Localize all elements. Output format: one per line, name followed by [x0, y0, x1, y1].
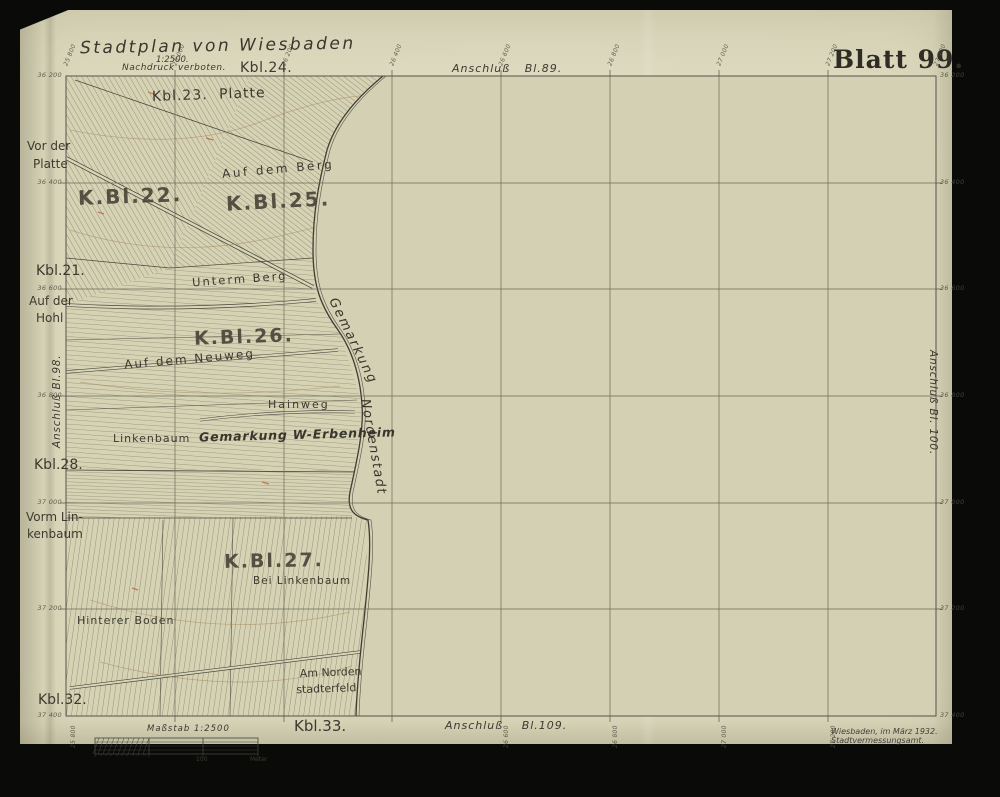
- grid-tick-left: 36 600: [28, 284, 62, 292]
- field-name-line: Am Norden: [300, 666, 362, 680]
- grid-tick-left: 37 000: [28, 498, 62, 506]
- map-label-block27: K.Bl.27.: [224, 551, 324, 573]
- field-name-vorm-linkenbaum: Vorm Lin- kenbaum: [26, 511, 83, 540]
- adjacent-sheet-kbl28: Kbl.28.: [34, 458, 83, 473]
- adjacent-sheet-kbl33: Kbl.33.: [294, 719, 346, 735]
- map-label-am-nordenstadterfeld: Am Norden stadterfeld: [300, 666, 363, 695]
- adjacent-sheet-kbl32: Kbl.32.: [38, 693, 87, 708]
- field-name-line: stadterfeld: [296, 681, 362, 695]
- map-label-block22: K.Bl.22.: [78, 184, 183, 209]
- imprint-line: Stadtvermessungsamt.: [831, 737, 938, 745]
- grid-tick-right: 36 400: [940, 178, 965, 186]
- grid-tick-bottom: 27 000: [721, 725, 728, 748]
- grid-tick-bottom: 25 800: [70, 725, 77, 748]
- grid-tick-bottom: 26 800: [612, 725, 619, 748]
- grid-tick-right: 37 400: [940, 711, 965, 719]
- adjacent-sheet-top: Anschluß Bl.89.: [452, 63, 562, 75]
- field-name-vor-der-platte: Vor der Platte: [27, 140, 70, 170]
- imprint-line: Wiesbaden, im März 1932.: [831, 728, 938, 736]
- field-name-auf-der-hohl: Auf der Hohl: [29, 295, 73, 324]
- map-label-hainweg: Hainweg: [268, 399, 330, 411]
- scalebar-mid-label: 100: [196, 757, 207, 763]
- grid-tick-left: 36 200: [28, 71, 62, 79]
- grid-tick-bottom: 27 200: [830, 725, 837, 748]
- scale-bar: [93, 738, 258, 757]
- adjacent-sheet-kbl21: Kbl.21.: [36, 264, 85, 279]
- grid-tick-right: 36 800: [940, 391, 965, 399]
- imprint: Wiesbaden, im März 1932. Stadtvermessung…: [831, 728, 938, 746]
- grid-tick-bottom: 26 600: [503, 725, 510, 748]
- grid-tick-left: 37 200: [28, 604, 62, 612]
- scalebar-title: Maßstab 1:2500: [147, 725, 230, 734]
- grid-tick-left: 36 400: [28, 178, 62, 186]
- grid-tick-right: 36 200: [940, 71, 965, 79]
- map-canvas: [0, 0, 1000, 797]
- field-name-line: kenbaum: [27, 528, 83, 541]
- field-name-line: Hohl: [36, 312, 73, 325]
- field-name-line: Auf der: [29, 295, 73, 308]
- grid-tick-right: 37 200: [940, 604, 965, 612]
- grid-tick-right: 37 000: [940, 498, 965, 506]
- field-name-line: Vorm Lin-: [26, 511, 83, 524]
- map-label-block25: K.Bl.25.: [226, 188, 331, 214]
- map-label-bei-linkenbaum: Bei Linkenbaum: [253, 576, 351, 587]
- field-name-line: Platte: [33, 158, 70, 171]
- grid-tick-left: 36 800: [28, 391, 62, 399]
- map-label-hinterer-boden: Hinterer Boden: [77, 615, 174, 627]
- scanned-map-sheet: { "header": { "title": "Stadtplan von Wi…: [0, 0, 1000, 797]
- adjacent-sheet-right: Anschluß Bl. 100.: [927, 350, 938, 455]
- map-label-linkenbaum: Linkenbaum: [113, 433, 190, 445]
- grid-tick-right: 36 600: [940, 284, 965, 292]
- grid-tick-left: 37 400: [28, 711, 62, 719]
- field-name-line: Vor der: [27, 140, 70, 153]
- adjacent-sheet-left: Anschluß Bl.98.: [52, 355, 63, 448]
- scalebar-unit-label: Meter: [250, 757, 267, 763]
